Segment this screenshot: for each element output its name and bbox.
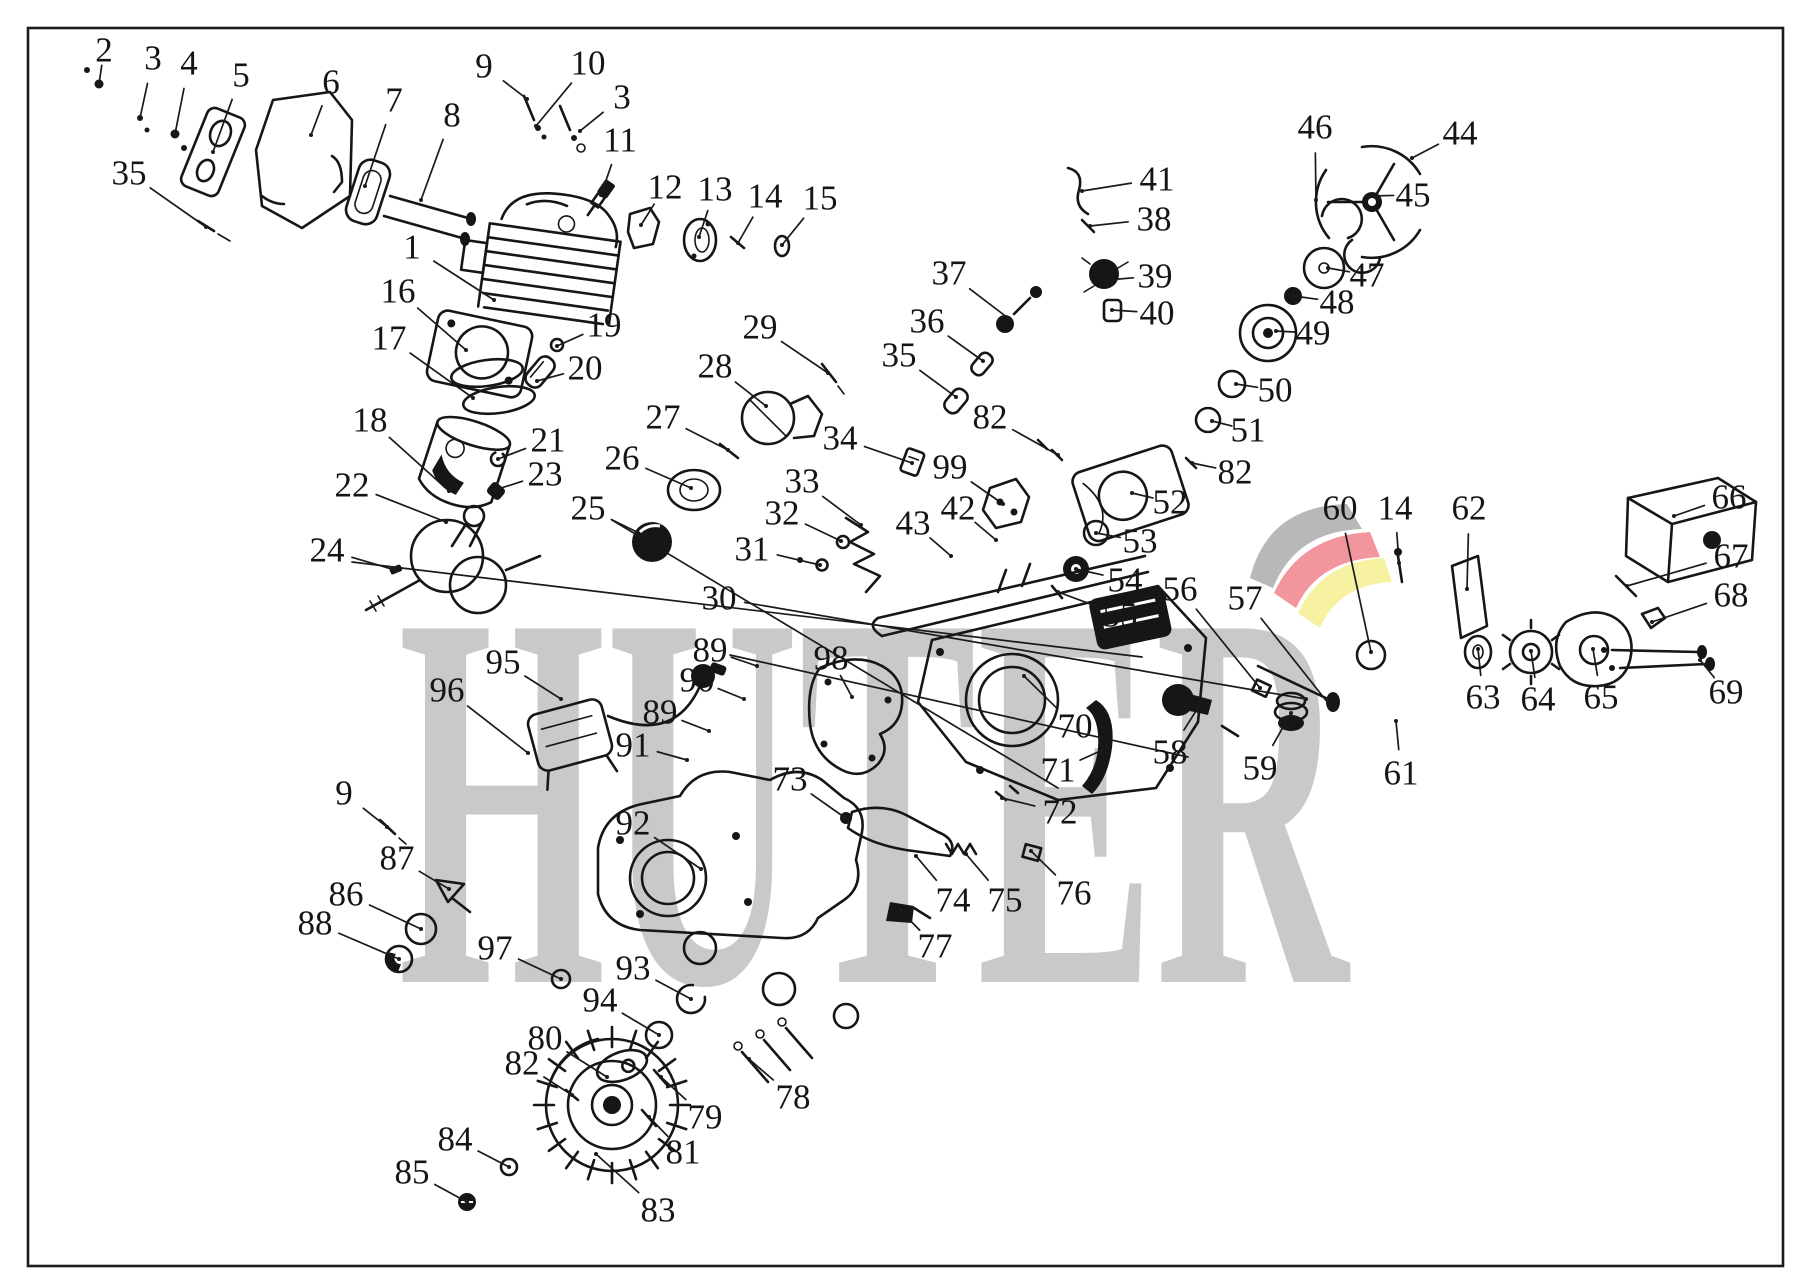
callout-80-target bbox=[605, 1075, 609, 1079]
callout-84-label: 84 bbox=[438, 1120, 473, 1159]
callout-82-label: 82 bbox=[505, 1044, 540, 1083]
callout-55-target bbox=[1056, 590, 1060, 594]
callout-87-target bbox=[447, 887, 451, 891]
callout-3-target bbox=[138, 116, 142, 120]
callout-54-target bbox=[1074, 567, 1078, 571]
callout-7-label: 7 bbox=[385, 81, 403, 120]
callout-6-label: 6 bbox=[322, 63, 340, 102]
callout-40-target bbox=[1110, 308, 1114, 312]
callout-14-label: 14 bbox=[1378, 489, 1413, 528]
callout-20-label: 20 bbox=[568, 349, 603, 388]
callout-33-label: 33 bbox=[785, 462, 820, 501]
callout-67-target bbox=[1625, 584, 1629, 588]
callout-68-target bbox=[1650, 620, 1654, 624]
callout-57-label: 57 bbox=[1228, 579, 1263, 618]
callout-38-label: 38 bbox=[1137, 200, 1172, 239]
callout-82-target bbox=[1056, 453, 1060, 457]
callout-62-target bbox=[1465, 587, 1469, 591]
callout-17-label: 17 bbox=[372, 319, 407, 358]
callout-81-target bbox=[647, 1115, 651, 1119]
callout-11-target bbox=[599, 193, 603, 197]
callout-69-target bbox=[1698, 658, 1702, 662]
callout-48-target bbox=[1292, 294, 1296, 298]
callout-64-target bbox=[1529, 649, 1533, 653]
callout-38-target bbox=[1088, 224, 1092, 228]
callout-60-label: 60 bbox=[1323, 489, 1358, 528]
callout-12-leader bbox=[641, 204, 654, 225]
callout-57-target bbox=[1326, 701, 1330, 705]
callout-46-target bbox=[1314, 198, 1318, 202]
callout-23-label: 23 bbox=[528, 455, 563, 494]
callout-82-target bbox=[1190, 461, 1194, 465]
callout-56-label: 56 bbox=[1163, 570, 1198, 609]
callout-9-target bbox=[525, 97, 529, 101]
callout-9-target bbox=[385, 825, 389, 829]
part-screws-69 bbox=[1601, 645, 1715, 671]
callout-9-leader bbox=[363, 808, 387, 827]
callout-18-target bbox=[447, 489, 451, 493]
callout-89-target bbox=[755, 664, 759, 668]
callout-19-target bbox=[555, 344, 559, 348]
callout-30-label: 30 bbox=[702, 579, 737, 618]
callout-53-target bbox=[1094, 531, 1098, 535]
callout-95-target bbox=[559, 697, 563, 701]
callout-16-leader bbox=[418, 308, 466, 350]
callout-88-target bbox=[397, 957, 401, 961]
callout-16-target bbox=[464, 348, 468, 352]
watermark-text: HUTER bbox=[398, 501, 1351, 1099]
callout-77-target bbox=[899, 909, 903, 913]
callout-82-target bbox=[570, 1093, 574, 1097]
callout-44-target bbox=[1410, 156, 1414, 160]
callout-52-leader bbox=[1132, 493, 1153, 498]
callout-97-label: 97 bbox=[478, 929, 513, 968]
callout-26-label: 26 bbox=[605, 439, 640, 478]
callout-52-target bbox=[1130, 491, 1134, 495]
callout-11-label: 11 bbox=[603, 121, 637, 160]
callout-35-target bbox=[954, 395, 958, 399]
callout-7-leader bbox=[365, 125, 386, 186]
callout-76-target bbox=[1029, 849, 1033, 853]
callout-35-leader bbox=[920, 370, 956, 397]
callout-36-target bbox=[981, 359, 985, 363]
callout-4-target bbox=[173, 132, 177, 136]
callout-71-target bbox=[1105, 746, 1109, 750]
callout-70-target bbox=[1022, 674, 1026, 678]
callout-93-target bbox=[689, 997, 693, 1001]
callout-9-label: 9 bbox=[335, 774, 353, 813]
callout-85-target bbox=[465, 1200, 469, 1204]
callout-43-label: 43 bbox=[896, 504, 931, 543]
callout-65-label: 65 bbox=[1584, 678, 1619, 717]
callout-96-target bbox=[526, 751, 530, 755]
callout-92-label: 92 bbox=[616, 804, 651, 843]
callout-45-target bbox=[1368, 194, 1372, 198]
callout-35-target bbox=[204, 225, 208, 229]
callout-13-target bbox=[697, 235, 701, 239]
callout-37-label: 37 bbox=[932, 254, 967, 293]
callout-98-target bbox=[850, 695, 854, 699]
callout-52-label: 52 bbox=[1153, 483, 1188, 522]
callout-4-leader bbox=[175, 89, 184, 134]
callout-50-label: 50 bbox=[1258, 371, 1293, 410]
callout-27-leader bbox=[686, 429, 728, 450]
callout-51-leader bbox=[1212, 421, 1232, 426]
callout-15-label: 15 bbox=[803, 179, 838, 218]
callout-51-target bbox=[1210, 419, 1214, 423]
callout-36-label: 36 bbox=[910, 302, 945, 341]
callout-86-label: 86 bbox=[329, 875, 364, 914]
callout-2-label: 2 bbox=[95, 31, 113, 70]
callout-16-label: 16 bbox=[381, 272, 416, 311]
callout-24-leader bbox=[352, 557, 395, 570]
callout-14-target bbox=[1397, 561, 1401, 565]
callout-43-target bbox=[949, 554, 953, 558]
callout-14-target bbox=[736, 241, 740, 245]
callout-24-target bbox=[393, 568, 397, 572]
callout-50-target bbox=[1234, 382, 1238, 386]
callout-22-label: 22 bbox=[335, 466, 370, 505]
callout-17-target bbox=[471, 396, 475, 400]
callout-67-label: 67 bbox=[1714, 537, 1749, 576]
callout-60-target bbox=[1369, 650, 1373, 654]
callout-28-target bbox=[764, 404, 768, 408]
callout-9-label: 9 bbox=[475, 47, 493, 86]
callout-55-label: 55 bbox=[1103, 596, 1138, 635]
callout-88-leader bbox=[339, 933, 399, 959]
callout-83-label: 83 bbox=[641, 1191, 676, 1230]
callout-77-label: 77 bbox=[918, 927, 953, 966]
callout-74-label: 74 bbox=[936, 881, 971, 920]
callout-27-label: 27 bbox=[646, 398, 681, 437]
callout-18-label: 18 bbox=[353, 401, 388, 440]
callout-49-target bbox=[1274, 329, 1278, 333]
callout-82-label: 82 bbox=[973, 398, 1008, 437]
callout-4-label: 4 bbox=[180, 44, 198, 83]
part-spark-plug-11 bbox=[583, 179, 616, 219]
callout-37-target bbox=[1006, 316, 1010, 320]
callout-19-label: 19 bbox=[587, 306, 622, 345]
callout-39-target bbox=[1105, 278, 1109, 282]
callout-64-label: 64 bbox=[1521, 680, 1556, 719]
callout-73-label: 73 bbox=[773, 760, 808, 799]
callout-5-target bbox=[211, 150, 215, 154]
callout-61-label: 61 bbox=[1384, 754, 1419, 793]
callout-34-label: 34 bbox=[823, 419, 858, 458]
callout-7-target bbox=[363, 184, 367, 188]
callout-54-label: 54 bbox=[1108, 561, 1143, 600]
callout-65-target bbox=[1591, 647, 1595, 651]
callout-56-target bbox=[1258, 686, 1262, 690]
callout-81-label: 81 bbox=[666, 1133, 701, 1172]
callout-30-target bbox=[1304, 697, 1308, 701]
callout-62-leader bbox=[1467, 534, 1468, 589]
callout-83-target bbox=[594, 1152, 598, 1156]
callout-71-label: 71 bbox=[1041, 751, 1076, 790]
callout-5-label: 5 bbox=[232, 56, 250, 95]
callout-29-leader bbox=[782, 342, 828, 373]
callout-75-target bbox=[964, 852, 968, 856]
callout-44-leader bbox=[1412, 144, 1438, 158]
callout-32-target bbox=[839, 539, 843, 543]
callout-82-label: 82 bbox=[1218, 453, 1253, 492]
callout-90-label: 90 bbox=[680, 661, 715, 700]
callout-12-label: 12 bbox=[648, 168, 683, 207]
callout-78-label: 78 bbox=[776, 1078, 811, 1117]
callout-13-label: 13 bbox=[698, 170, 733, 209]
callout-45-label: 45 bbox=[1396, 176, 1431, 215]
callout-8-leader bbox=[421, 139, 443, 200]
callout-3-target bbox=[578, 129, 582, 133]
callout-90-target bbox=[742, 697, 746, 701]
callout-61-leader bbox=[1396, 721, 1399, 750]
callout-99-label: 99 bbox=[933, 448, 968, 487]
callout-14-label: 14 bbox=[748, 177, 783, 216]
callout-3-leader bbox=[140, 83, 147, 118]
callout-25-target bbox=[643, 534, 647, 538]
callout-42-target bbox=[994, 538, 998, 542]
callout-59-label: 59 bbox=[1243, 749, 1278, 788]
callout-66-leader bbox=[1674, 505, 1704, 516]
callout-17-leader bbox=[410, 353, 473, 398]
callout-2-target bbox=[97, 82, 101, 86]
callout-75-label: 75 bbox=[988, 881, 1023, 920]
callout-47-label: 47 bbox=[1350, 256, 1385, 295]
callout-35-label: 35 bbox=[882, 336, 917, 375]
callout-31-label: 31 bbox=[735, 530, 770, 569]
callout-59-target bbox=[1289, 711, 1293, 715]
callout-28-label: 28 bbox=[698, 347, 733, 386]
callout-24-label: 24 bbox=[310, 531, 345, 570]
callout-1-label: 1 bbox=[403, 228, 421, 267]
callout-47-target bbox=[1326, 266, 1330, 270]
part-screws-8 bbox=[384, 196, 476, 246]
callout-15-leader bbox=[782, 218, 804, 245]
callout-78-target bbox=[747, 1057, 751, 1061]
callout-6-leader bbox=[311, 106, 322, 135]
callout-3-label: 3 bbox=[144, 39, 162, 78]
callout-8-target bbox=[419, 198, 423, 202]
callout-58-label: 58 bbox=[1153, 733, 1188, 772]
part-oiler-38-41 bbox=[1068, 168, 1128, 321]
callout-68-label: 68 bbox=[1714, 576, 1749, 615]
callout-85-label: 85 bbox=[395, 1153, 430, 1192]
callout-91-target bbox=[685, 758, 689, 762]
callout-37-leader bbox=[970, 289, 1008, 318]
callout-31-target bbox=[818, 563, 822, 567]
callout-45-leader bbox=[1370, 195, 1394, 196]
part-cover-6 bbox=[256, 92, 352, 228]
callout-69-label: 69 bbox=[1709, 673, 1744, 712]
callout-94-target bbox=[657, 1033, 661, 1037]
callout-29-label: 29 bbox=[743, 308, 778, 347]
callout-40-leader bbox=[1112, 310, 1137, 312]
part-gaskets-12-13 bbox=[628, 208, 789, 261]
callout-29-target bbox=[826, 371, 830, 375]
callout-51-label: 51 bbox=[1231, 411, 1266, 450]
callout-20-target bbox=[535, 379, 539, 383]
callout-9-leader bbox=[503, 81, 527, 99]
callout-42-label: 42 bbox=[941, 489, 976, 528]
callout-35-leader bbox=[150, 188, 206, 227]
part-clutch-springs-46 bbox=[1322, 199, 1362, 238]
callout-87-label: 87 bbox=[380, 839, 415, 878]
exploded-view-svg: HUTER bbox=[0, 0, 1809, 1283]
callout-41-leader bbox=[1082, 183, 1131, 191]
callout-72-target bbox=[1000, 796, 1004, 800]
callout-98-label: 98 bbox=[814, 639, 849, 678]
callout-34-target bbox=[910, 461, 914, 465]
callout-3-leader bbox=[580, 112, 603, 131]
callout-49-leader bbox=[1276, 331, 1296, 332]
callout-25-label: 25 bbox=[571, 489, 606, 528]
callout-1-target bbox=[492, 298, 496, 302]
callout-74-target bbox=[914, 854, 918, 858]
callout-26-target bbox=[689, 486, 693, 490]
callout-66-target bbox=[1672, 514, 1676, 518]
callout-40-label: 40 bbox=[1140, 294, 1175, 333]
callout-70-label: 70 bbox=[1058, 707, 1093, 746]
callout-61-target bbox=[1394, 719, 1398, 723]
callout-91-label: 91 bbox=[616, 726, 651, 765]
part-plate-62 bbox=[1452, 556, 1487, 638]
callout-79-target bbox=[659, 1075, 663, 1079]
callout-49-label: 49 bbox=[1296, 314, 1331, 353]
callout-41-target bbox=[1080, 189, 1084, 193]
callout-76-label: 76 bbox=[1057, 874, 1092, 913]
callout-14-leader bbox=[738, 217, 753, 243]
callout-96-label: 96 bbox=[430, 671, 465, 710]
callout-53-label: 53 bbox=[1123, 522, 1158, 561]
callout-22-target bbox=[444, 520, 448, 524]
callout-21-target bbox=[496, 457, 500, 461]
callout-3-label: 3 bbox=[613, 78, 631, 117]
callout-46-leader bbox=[1315, 153, 1316, 200]
part-oil-seal-60 bbox=[1357, 641, 1385, 669]
callout-79-label: 79 bbox=[688, 1098, 723, 1137]
callout-33-target bbox=[859, 523, 863, 527]
callout-83-leader bbox=[596, 1154, 639, 1193]
exploded-parts-diagram: HUTER bbox=[0, 0, 1809, 1283]
callout-10-target bbox=[534, 124, 538, 128]
part-piston-rings-17 bbox=[450, 355, 537, 418]
callout-15-target bbox=[780, 243, 784, 247]
callout-6-target bbox=[309, 133, 313, 137]
callout-36-leader bbox=[948, 336, 983, 361]
callout-72-label: 72 bbox=[1043, 793, 1078, 832]
callout-99-target bbox=[1001, 502, 1005, 506]
callout-97-target bbox=[559, 977, 563, 981]
callout-84-target bbox=[507, 1165, 511, 1169]
callout-89-target bbox=[707, 729, 711, 733]
callout-39-label: 39 bbox=[1138, 257, 1173, 296]
part-small-fasteners bbox=[84, 67, 230, 241]
callout-62-label: 62 bbox=[1452, 489, 1487, 528]
callout-63-target bbox=[1476, 647, 1480, 651]
callout-47-leader bbox=[1328, 268, 1349, 272]
callout-10-label: 10 bbox=[571, 44, 606, 83]
callout-93-label: 93 bbox=[616, 949, 651, 988]
callout-58-target bbox=[1199, 701, 1203, 705]
callout-95-label: 95 bbox=[486, 643, 521, 682]
callout-86-target bbox=[419, 927, 423, 931]
callout-92-target bbox=[699, 867, 703, 871]
callout-44-label: 44 bbox=[1443, 114, 1478, 153]
callout-50-leader bbox=[1236, 384, 1257, 387]
callout-94-label: 94 bbox=[583, 981, 618, 1020]
callout-63-label: 63 bbox=[1466, 678, 1501, 717]
callout-35-label: 35 bbox=[112, 154, 147, 193]
callout-63-leader bbox=[1478, 649, 1481, 675]
callout-82-leader bbox=[1013, 430, 1058, 455]
callout-8-label: 8 bbox=[443, 96, 461, 135]
callout-46-label: 46 bbox=[1298, 108, 1333, 147]
callout-38-leader bbox=[1090, 222, 1128, 226]
callout-73-target bbox=[842, 815, 846, 819]
callout-27-target bbox=[726, 448, 730, 452]
callout-85-leader bbox=[435, 1184, 467, 1202]
callout-66-label: 66 bbox=[1712, 478, 1747, 517]
part-piston-18 bbox=[415, 410, 514, 515]
callout-23-target bbox=[493, 488, 497, 492]
callout-12-target bbox=[639, 223, 643, 227]
callout-65-leader bbox=[1593, 649, 1597, 675]
callout-88-label: 88 bbox=[298, 904, 333, 943]
callout-41-label: 41 bbox=[1140, 160, 1175, 199]
